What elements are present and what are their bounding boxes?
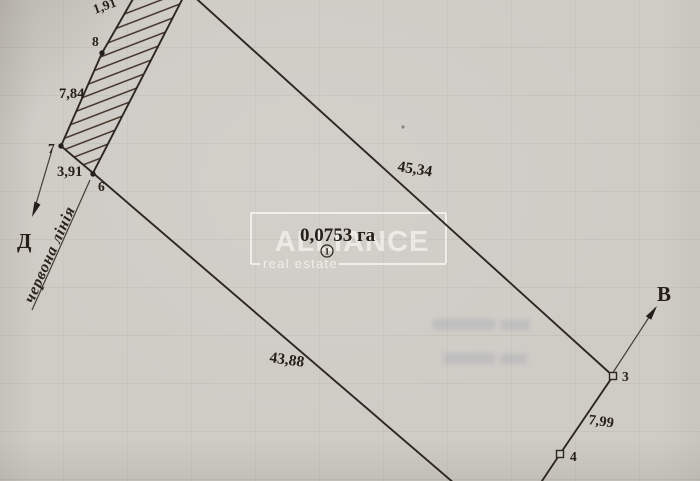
point-6-label: 6 xyxy=(98,179,105,194)
measurement-3-91: 3,91 xyxy=(57,164,82,180)
parcel-area-value: 0,0753 га xyxy=(300,225,376,246)
red-line-label: червона лінія xyxy=(21,204,79,306)
measurement-7-99: 7,99 xyxy=(587,412,614,431)
point-4-label: 4 xyxy=(570,449,577,464)
boundary-ne-line xyxy=(189,0,613,376)
point-7-label: 7 xyxy=(48,141,55,156)
point-8-marker xyxy=(99,50,104,55)
parcel-index-number: 1 xyxy=(325,248,330,258)
paper-speck xyxy=(401,125,404,128)
measurement-7-84: 7,84 xyxy=(59,86,84,102)
direction-west-label: Д xyxy=(17,229,32,253)
watermark-subtitle: real estate xyxy=(263,256,338,271)
point-6-marker xyxy=(90,171,95,176)
boundary-sw-line xyxy=(93,173,455,481)
arrowhead-west xyxy=(32,202,41,218)
point-8-label: 8 xyxy=(92,34,99,49)
measurement-45-34: 45,34 xyxy=(396,158,433,180)
page-bleed-through xyxy=(433,319,530,364)
direction-east-label: В xyxy=(657,282,671,306)
direction-east: В xyxy=(612,282,671,374)
direction-west: Д xyxy=(17,150,52,253)
point-3-marker xyxy=(610,373,617,380)
arrowhead-east xyxy=(646,306,657,320)
measurement-43-88: 43,88 xyxy=(268,349,305,371)
red-line-group: червона лінія xyxy=(21,180,90,310)
survey-plan-photo: ALLIANCE real estate червона лінія Д В xyxy=(0,0,700,481)
point-4-marker xyxy=(557,451,564,458)
point-7-marker xyxy=(58,143,63,148)
measurement-1-91: 1,91 xyxy=(91,0,119,17)
point-3-label: 3 xyxy=(622,369,629,384)
